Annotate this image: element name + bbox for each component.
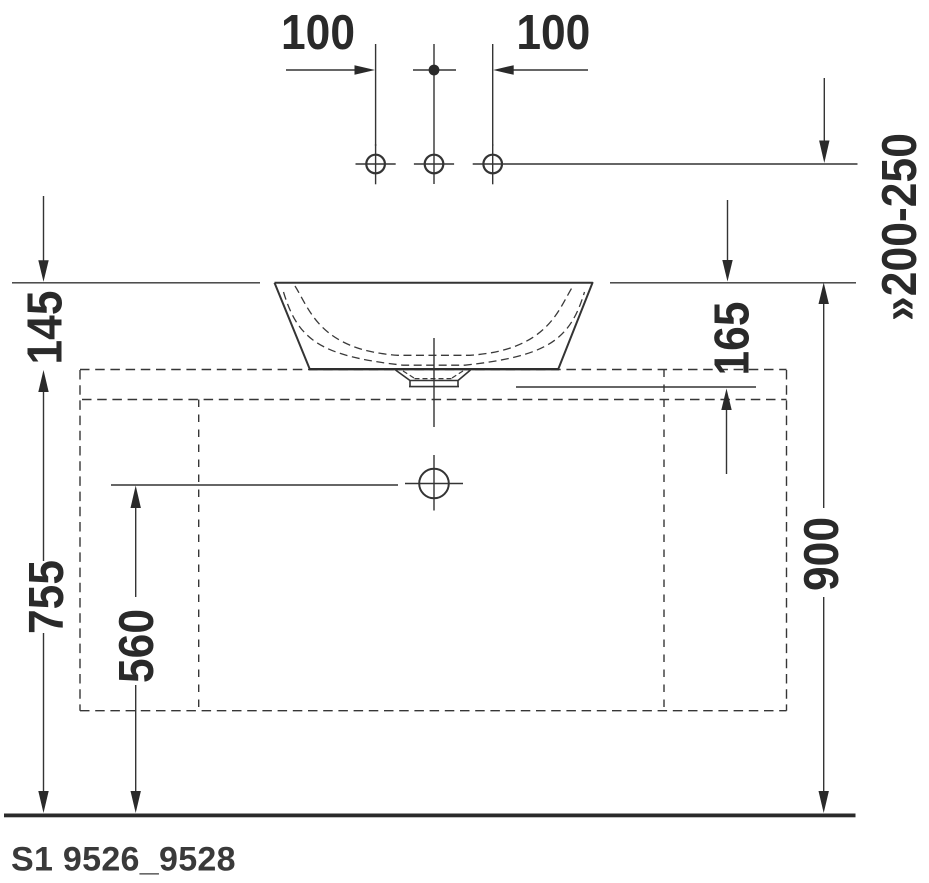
svg-text:560: 560 <box>109 609 164 683</box>
svg-text:900: 900 <box>794 517 849 591</box>
svg-text:S1 9526_9528: S1 9526_9528 <box>11 841 236 879</box>
svg-text:100: 100 <box>281 5 355 60</box>
svg-text:145: 145 <box>17 291 72 365</box>
svg-text:165: 165 <box>704 302 759 376</box>
svg-text:»200-250: »200-250 <box>872 133 927 321</box>
svg-text:100: 100 <box>516 5 590 60</box>
svg-text:755: 755 <box>19 560 74 634</box>
